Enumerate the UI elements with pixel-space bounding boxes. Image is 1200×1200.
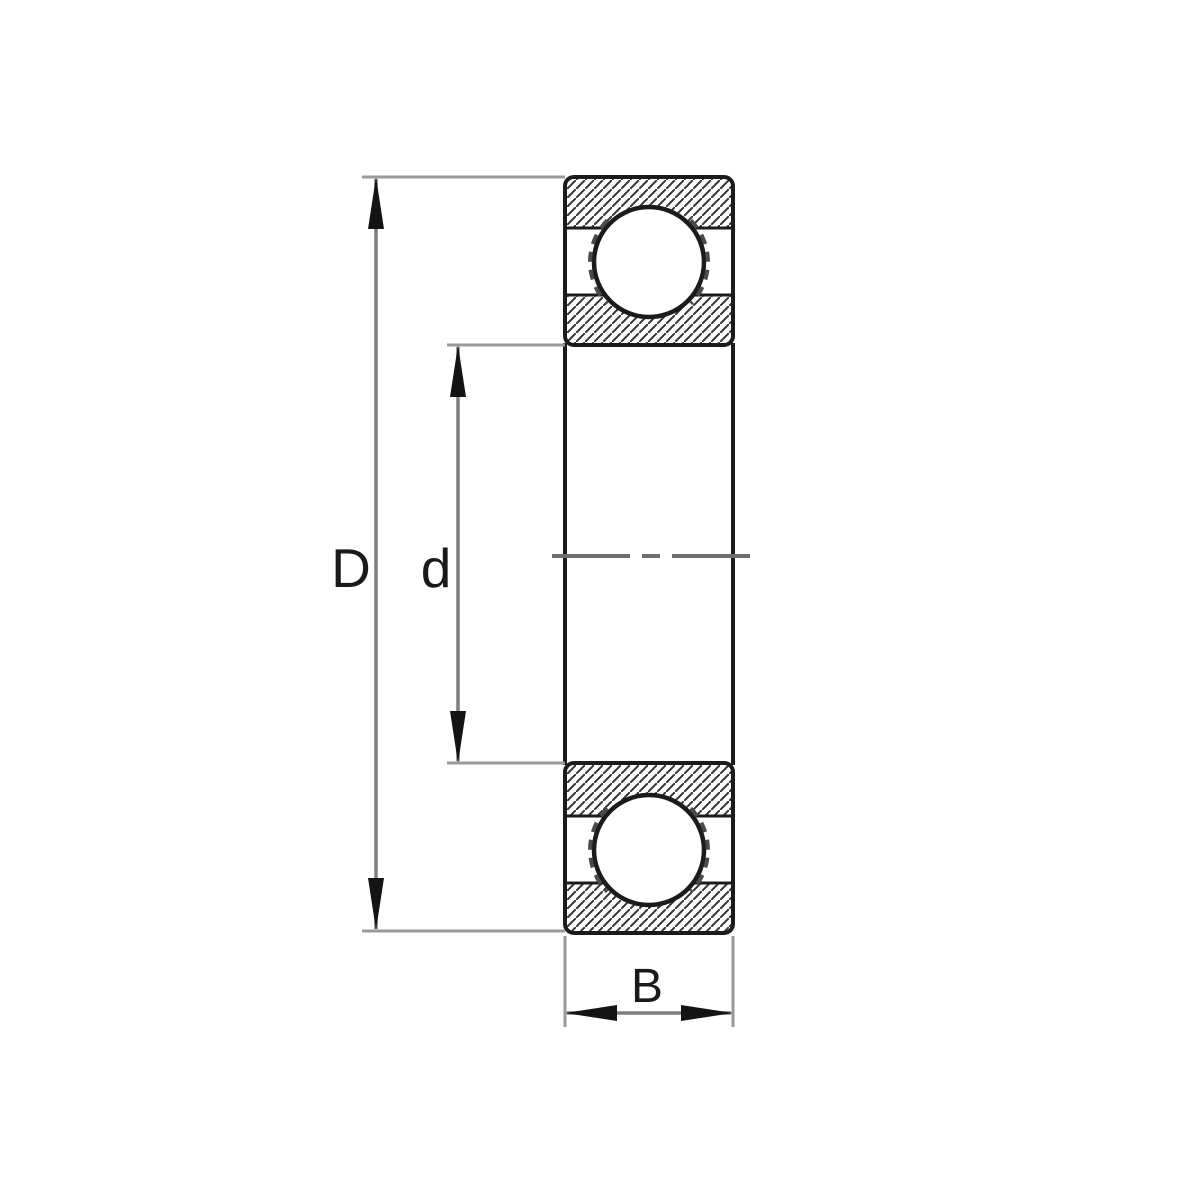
ball-bottom [594, 795, 704, 905]
dimension-width: B [565, 936, 733, 1027]
label-outer-diameter: D [331, 537, 371, 599]
label-bore-diameter: d [421, 537, 452, 599]
ball-top [594, 207, 704, 317]
arrow-D-down-icon [368, 878, 384, 930]
arrow-D-up-icon [368, 177, 384, 229]
arrow-B-right-icon [681, 1005, 733, 1021]
bearing-bottom-section [565, 763, 733, 933]
dimension-bore-diameter: d [421, 345, 565, 763]
bearing-section-drawing: D d B [0, 0, 1200, 1200]
bearing-cross-section [552, 177, 752, 933]
label-width: B [631, 960, 663, 1013]
arrow-B-left-icon [565, 1005, 617, 1021]
arrow-d-up-icon [450, 345, 466, 397]
arrow-d-down-icon [450, 711, 466, 763]
bearing-top-section [565, 177, 733, 345]
